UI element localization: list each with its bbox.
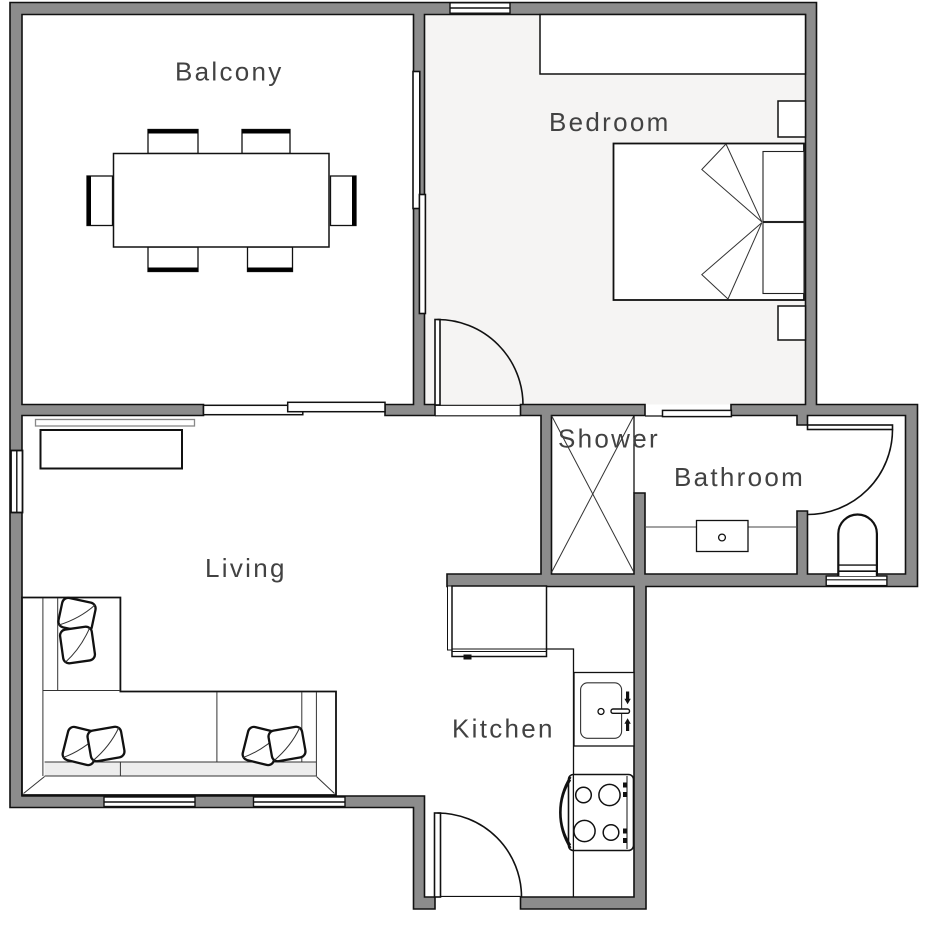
svg-text:Shower: Shower (558, 424, 660, 454)
svg-text:Kitchen: Kitchen (452, 714, 555, 744)
svg-text:Bathroom: Bathroom (674, 462, 805, 492)
svg-text:Balcony: Balcony (175, 57, 284, 87)
svg-text:Living: Living (205, 553, 287, 583)
svg-text:Bedroom: Bedroom (549, 107, 671, 137)
